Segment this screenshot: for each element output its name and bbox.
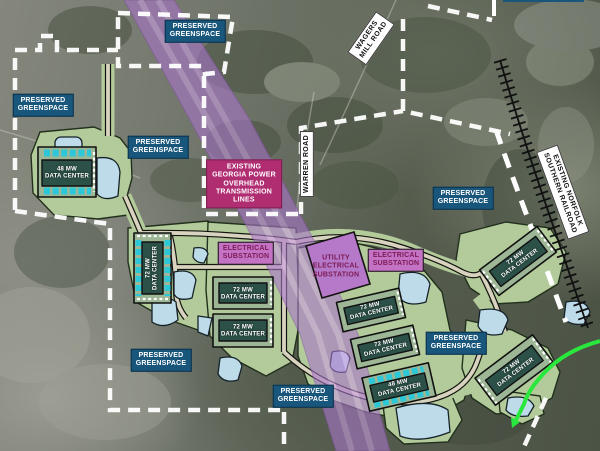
greenspace-label-southeast: PRESERVED GREENSPACE bbox=[426, 332, 487, 355]
greenspace-label-west: PRESERVED GREENSPACE bbox=[13, 94, 74, 117]
electrical-substation-label-east: ELECTRICAL SUBSTATION bbox=[368, 249, 424, 272]
greenspace-label-top: PRESERVED GREENSPACE bbox=[165, 20, 226, 43]
site-plan-map: PRESERVED GREENSPACE PRESERVED GREENSPAC… bbox=[0, 0, 600, 451]
transmission-lines-label: EXISTING GEORGIA POWER OVERHEAD TRANSMIS… bbox=[206, 159, 282, 208]
greenspace-label-southwest: PRESERVED GREENSPACE bbox=[131, 349, 192, 372]
road-label-warren: WARREN ROAD bbox=[300, 131, 314, 197]
greenspace-label-east: PRESERVED GREENSPACE bbox=[433, 187, 494, 210]
site-plan-overlay bbox=[0, 0, 600, 451]
greenspace-label-midwest: PRESERVED GREENSPACE bbox=[128, 136, 189, 159]
utility-substation-label: UTILITY ELECTRICAL SUBSTATION bbox=[309, 253, 363, 282]
improvements-partial-label: IMPROVEMENTS bbox=[503, 0, 584, 2]
dc-label-72mw-middle-lower: 72 MW DATA CENTER bbox=[221, 324, 265, 337]
dc-label-72mw-west: 72 MW DATA CENTER bbox=[145, 246, 158, 290]
electrical-substation-label-west: ELECTRICAL SUBSTATION bbox=[218, 242, 274, 265]
greenspace-label-south: PRESERVED GREENSPACE bbox=[273, 385, 334, 408]
dc-label-72mw-middle-upper: 72 MW DATA CENTER bbox=[221, 287, 265, 300]
dc-label-48mw-northwest: 48 MW DATA CENTER bbox=[45, 166, 89, 179]
